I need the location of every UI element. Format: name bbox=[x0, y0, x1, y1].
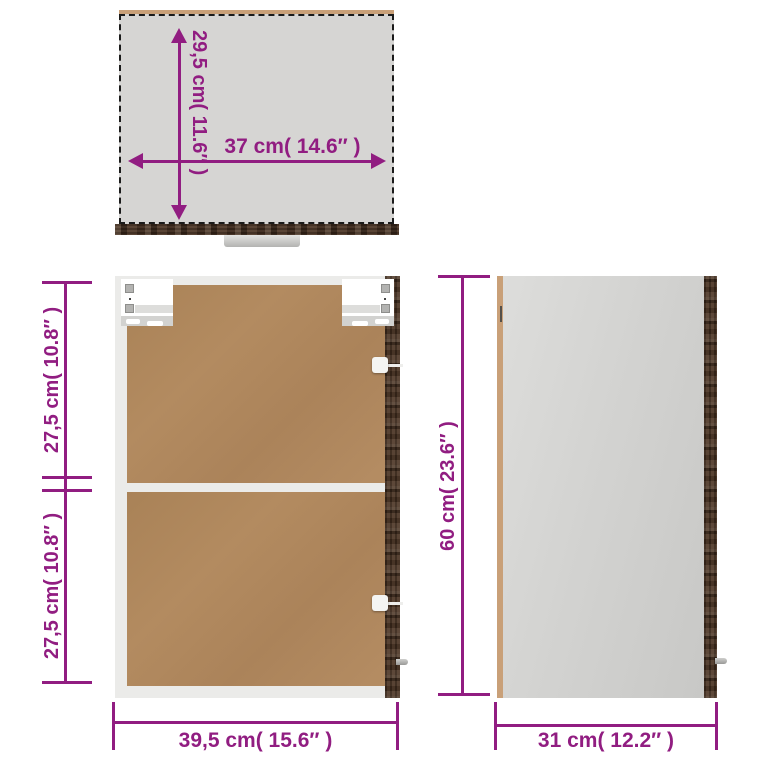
side-depth-line bbox=[494, 724, 718, 727]
cap bbox=[42, 281, 92, 284]
total-height-line bbox=[461, 277, 464, 695]
wall-bracket-right bbox=[342, 279, 394, 326]
height-dim-line bbox=[64, 283, 67, 683]
total-height-label: 60 cm( 23.6″ ) bbox=[437, 421, 459, 551]
cap bbox=[438, 275, 490, 278]
side-back-edge-wood bbox=[704, 276, 717, 698]
top-view-mount-tab bbox=[224, 235, 300, 247]
cap bbox=[42, 476, 92, 479]
front-view bbox=[115, 276, 400, 698]
side-view bbox=[497, 276, 717, 698]
cap bbox=[42, 681, 92, 684]
side-depth-label: 31 cm( 12.2″ ) bbox=[494, 729, 718, 752]
cap bbox=[42, 489, 92, 492]
side-edge-mark bbox=[500, 306, 502, 322]
diagram-canvas: 29,5 cm( 11.6″ ) 37 cm( 14.6″ ) bbox=[0, 0, 767, 767]
width-arrow-line bbox=[141, 160, 372, 163]
front-door-edge-wood bbox=[385, 276, 400, 698]
top-view-outline bbox=[119, 14, 394, 224]
top-width-label: 37 cm( 14.6″ ) bbox=[200, 135, 385, 158]
lower-height-label: 27,5 cm( 10.8″ ) bbox=[41, 513, 63, 659]
front-width-label: 39,5 cm( 15.6″ ) bbox=[112, 729, 399, 752]
top-depth-label: 29,5 cm( 11.6″ ) bbox=[188, 30, 210, 220]
hinge-upper bbox=[372, 357, 388, 373]
cap bbox=[438, 693, 490, 696]
wall-bracket-left bbox=[121, 279, 173, 326]
arrow-right-icon bbox=[371, 153, 386, 169]
screw-side bbox=[715, 658, 727, 664]
side-panel bbox=[503, 276, 704, 698]
back-panel-lower bbox=[127, 492, 385, 686]
front-width-line bbox=[112, 721, 399, 724]
depth-arrow-line bbox=[178, 41, 181, 205]
hinge-lower bbox=[372, 595, 388, 611]
screw-front bbox=[396, 659, 408, 665]
arrow-down-icon bbox=[171, 205, 187, 220]
top-view-wood-strip bbox=[115, 224, 399, 235]
upper-height-label: 27,5 cm( 10.8″ ) bbox=[41, 307, 63, 453]
